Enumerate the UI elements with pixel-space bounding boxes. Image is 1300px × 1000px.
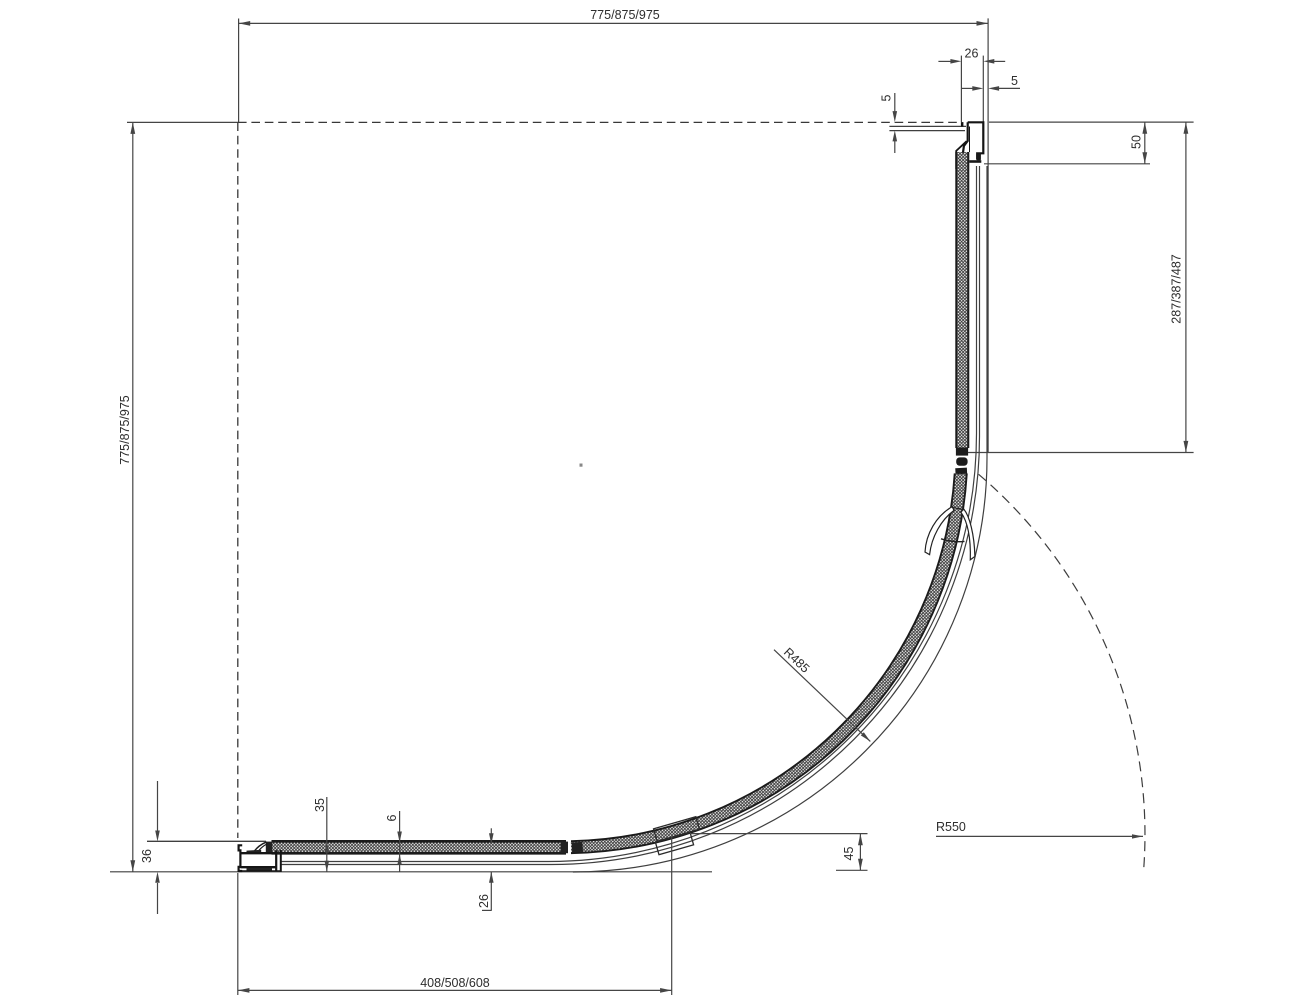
svg-text:50: 50 — [1130, 135, 1144, 149]
svg-text:R550: R550 — [936, 820, 966, 834]
svg-text:408/508/608: 408/508/608 — [420, 976, 490, 990]
svg-text:6: 6 — [385, 814, 399, 821]
svg-text:287/387/487: 287/387/487 — [1170, 254, 1184, 324]
svg-text:5: 5 — [1011, 74, 1018, 88]
svg-text:775/875/975: 775/875/975 — [118, 395, 132, 465]
svg-text:26: 26 — [477, 894, 491, 908]
svg-text:45: 45 — [842, 847, 856, 861]
svg-text:5: 5 — [880, 94, 894, 101]
svg-text:775/875/975: 775/875/975 — [590, 8, 660, 22]
svg-text:35: 35 — [313, 798, 327, 812]
svg-text:26: 26 — [965, 47, 979, 61]
svg-text:36: 36 — [140, 849, 154, 863]
